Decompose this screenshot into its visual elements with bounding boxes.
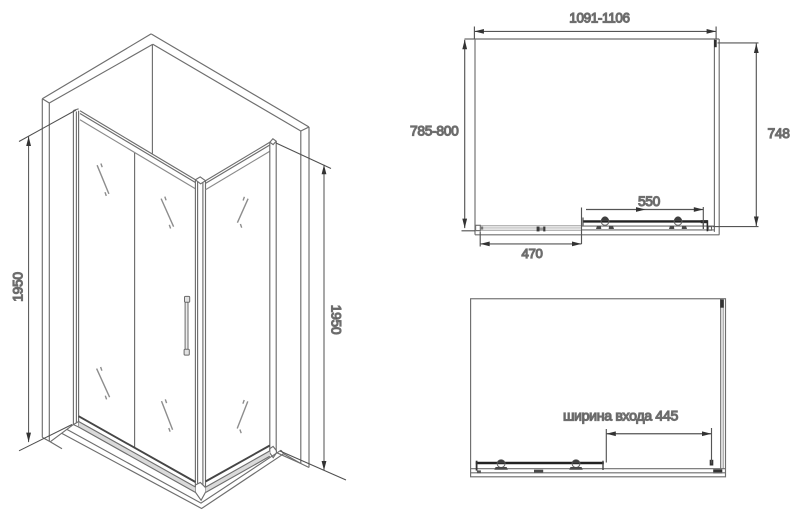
svg-text:1950: 1950: [329, 305, 344, 335]
svg-text:748: 748: [768, 126, 791, 141]
svg-text:1091-1106: 1091-1106: [569, 11, 629, 26]
svg-text:ширина входа 445: ширина входа 445: [563, 409, 678, 425]
svg-text:1950: 1950: [11, 272, 26, 302]
svg-text:550: 550: [638, 194, 661, 209]
svg-text:785-800: 785-800: [410, 124, 459, 139]
svg-text:470: 470: [521, 246, 542, 261]
